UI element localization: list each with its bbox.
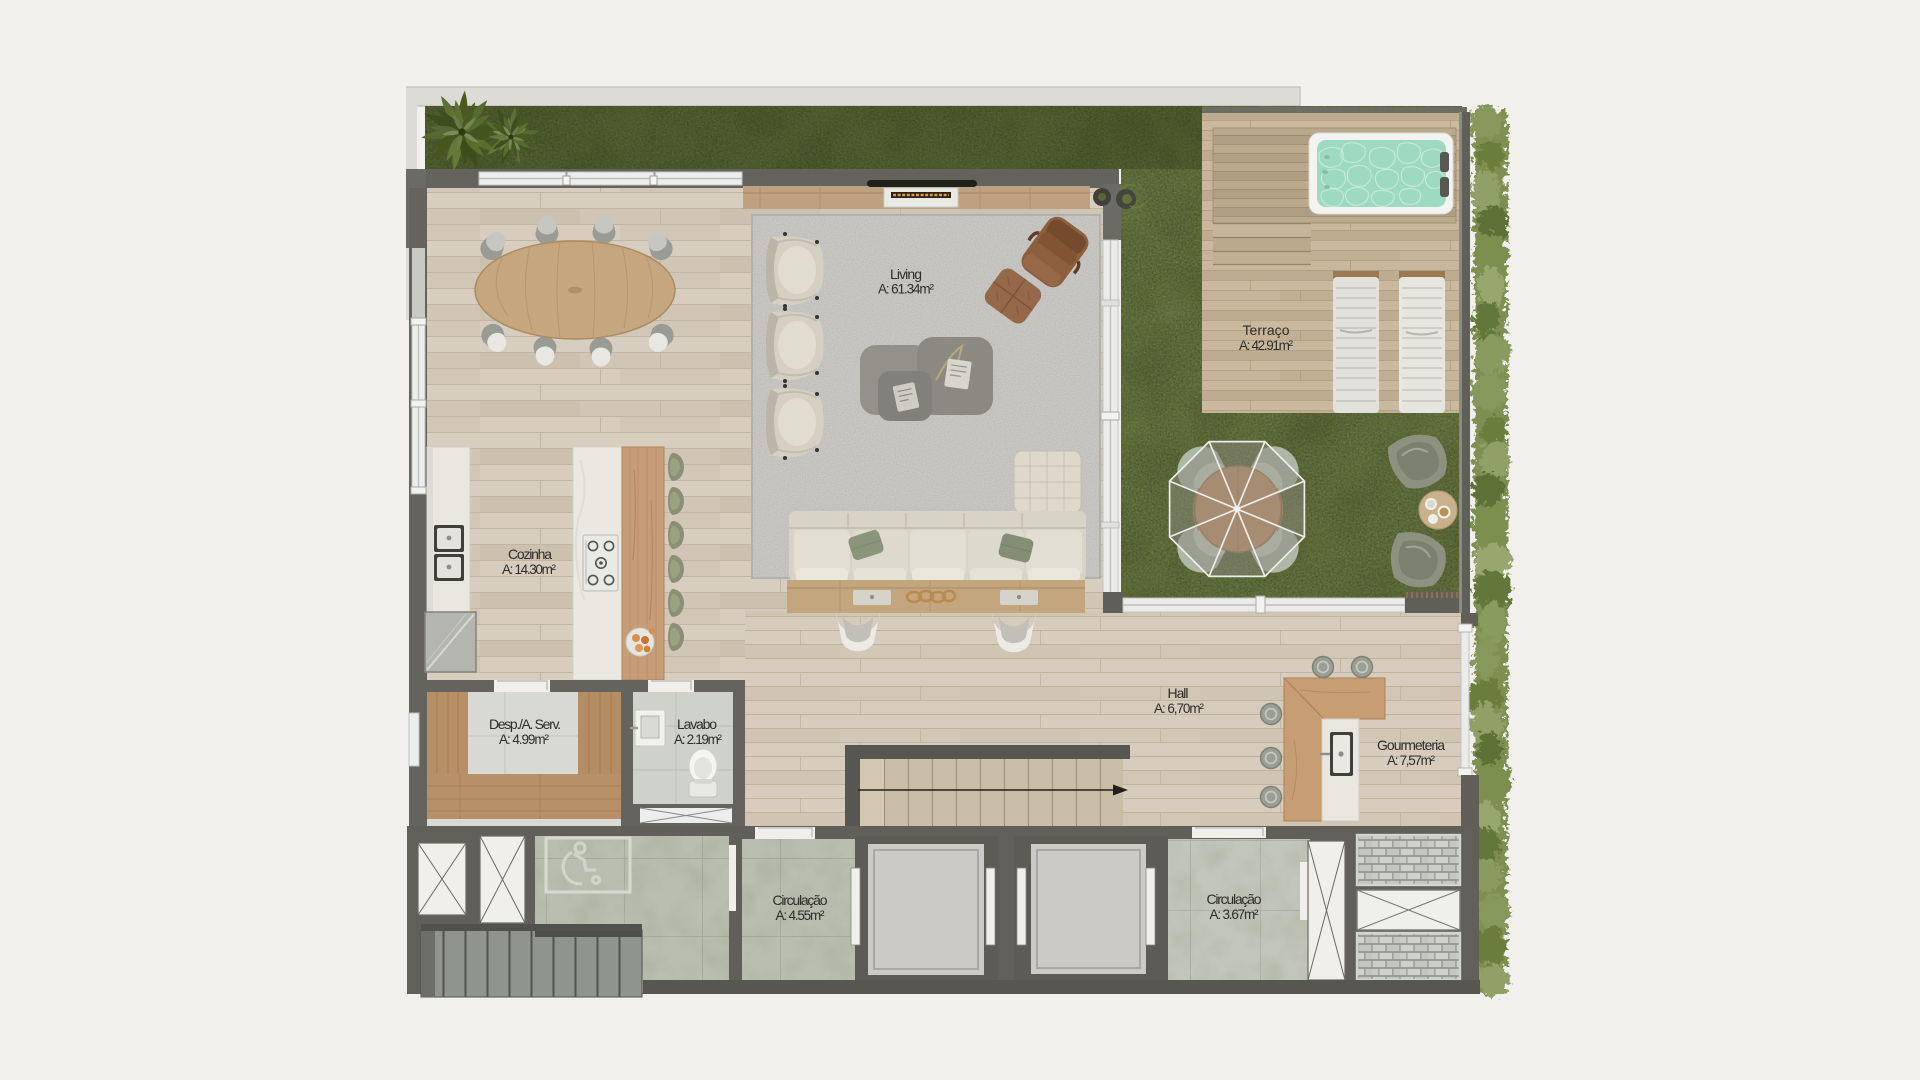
svg-text:A: 61.34m²: A: 61.34m² (878, 282, 935, 297)
svg-text:Circulação: Circulação (773, 892, 828, 908)
svg-text:Living: Living (890, 266, 922, 282)
svg-text:A: 4.55m²: A: 4.55m² (776, 908, 826, 923)
svg-text:Cozinha: Cozinha (508, 546, 552, 562)
svg-text:Circulação: Circulação (1207, 891, 1262, 907)
svg-text:A: 7,57m²: A: 7,57m² (1387, 753, 1436, 768)
svg-text:Lavabo: Lavabo (677, 716, 717, 732)
svg-text:A: 42.91m²: A: 42.91m² (1239, 338, 1294, 353)
svg-text:A: 2.19m²: A: 2.19m² (674, 732, 723, 747)
svg-text:A: 6,70m²: A: 6,70m² (1154, 701, 1205, 716)
svg-text:Hall: Hall (1168, 685, 1189, 701)
svg-text:Desp./A. Serv.: Desp./A. Serv. (489, 716, 561, 732)
svg-text:Terraço: Terraço (1243, 322, 1290, 338)
svg-text:A: 14.30m²: A: 14.30m² (502, 562, 557, 577)
svg-text:A: 4.99m²: A: 4.99m² (499, 732, 550, 747)
svg-text:A: 3.67m²: A: 3.67m² (1210, 907, 1260, 922)
svg-text:Gourmeteria: Gourmeteria (1377, 737, 1445, 753)
